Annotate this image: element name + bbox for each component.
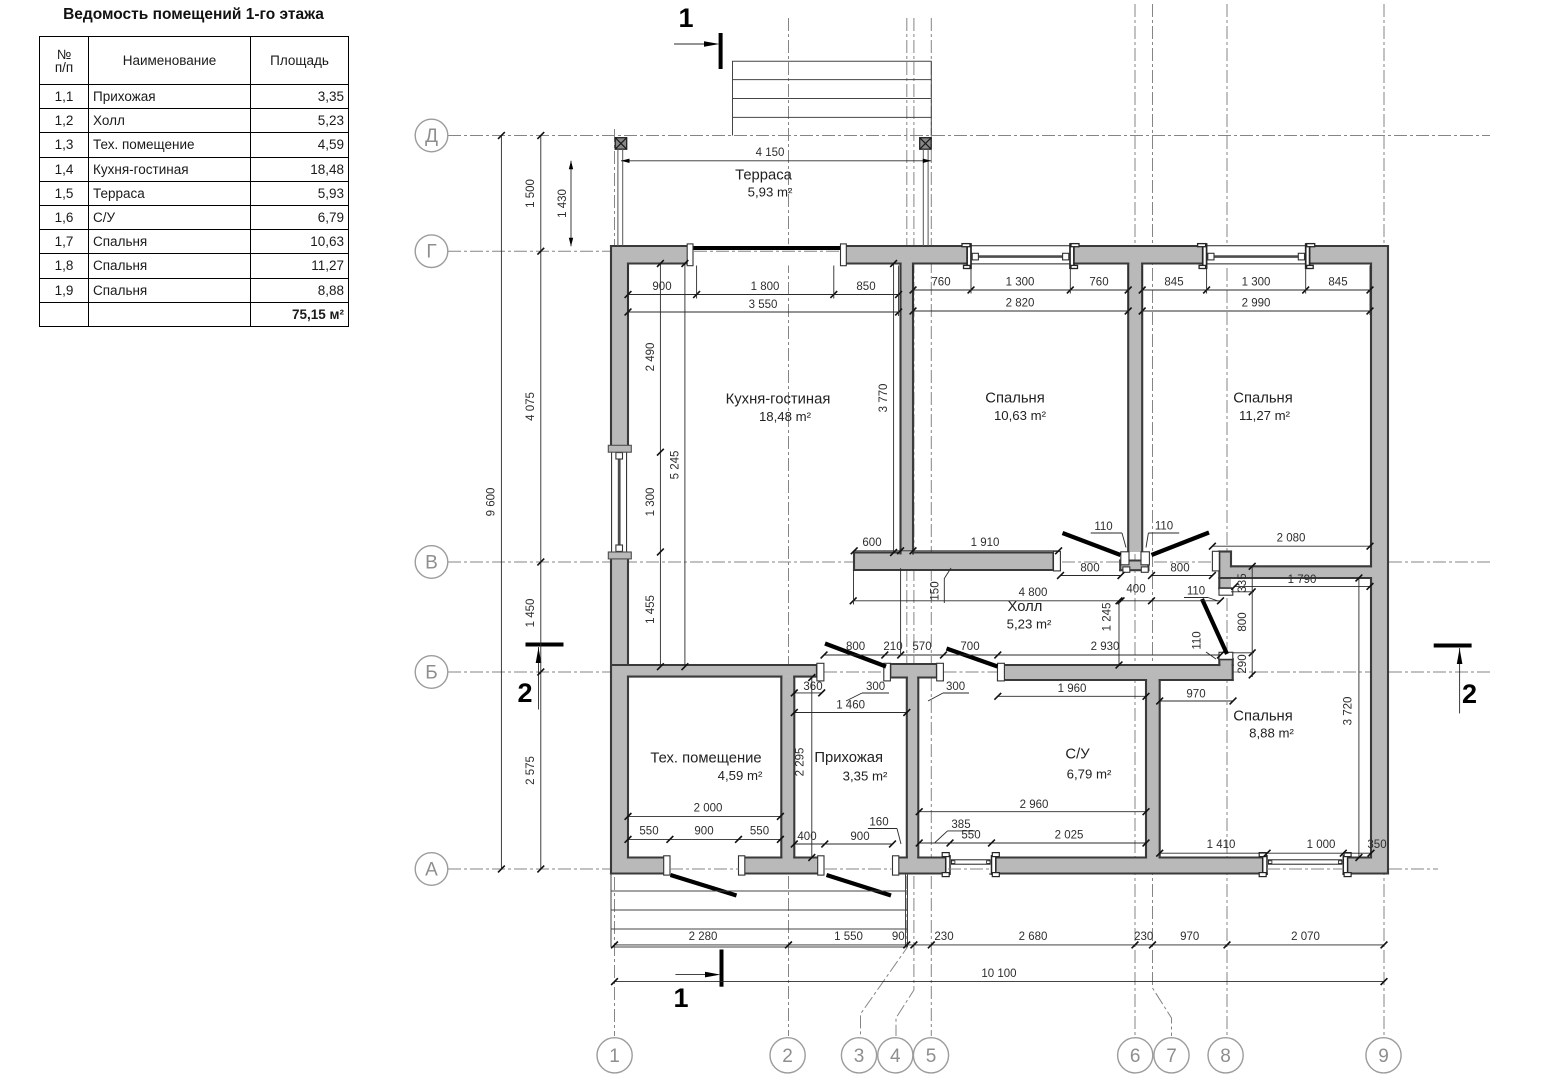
svg-text:1 450: 1 450 [525, 599, 537, 628]
svg-text:Д: Д [425, 126, 438, 147]
svg-text:1 410: 1 410 [1207, 839, 1236, 851]
svg-text:1 300: 1 300 [1006, 277, 1035, 289]
svg-text:3 720: 3 720 [1343, 697, 1355, 726]
svg-text:10,63 m²: 10,63 m² [994, 408, 1047, 423]
svg-text:2 000: 2 000 [694, 803, 723, 815]
svg-text:1 910: 1 910 [971, 537, 1000, 549]
svg-text:1 300: 1 300 [645, 488, 657, 517]
svg-text:1 430: 1 430 [557, 189, 569, 218]
svg-text:3 550: 3 550 [749, 299, 778, 311]
svg-text:385: 385 [951, 819, 970, 831]
svg-text:400: 400 [1126, 584, 1145, 596]
svg-text:400: 400 [797, 831, 816, 843]
svg-text:4 800: 4 800 [1019, 587, 1048, 599]
svg-text:110: 110 [1155, 521, 1173, 533]
svg-text:5,23 m²: 5,23 m² [1007, 617, 1052, 632]
svg-text:600: 600 [862, 537, 881, 549]
svg-text:А: А [425, 860, 438, 881]
svg-text:Г: Г [426, 242, 436, 263]
svg-text:1 300: 1 300 [1242, 277, 1271, 289]
svg-text:1 800: 1 800 [751, 281, 780, 293]
svg-text:Кухня-гостиная: Кухня-гостиная [726, 392, 831, 408]
svg-text:11,27 m²: 11,27 m² [1239, 408, 1291, 423]
svg-text:1: 1 [673, 983, 688, 1013]
svg-text:550: 550 [639, 826, 658, 838]
svg-text:2 070: 2 070 [1291, 931, 1320, 943]
svg-text:Спальня: Спальня [1233, 391, 1292, 407]
svg-text:2: 2 [1462, 679, 1477, 709]
svg-text:1 455: 1 455 [645, 595, 657, 624]
svg-text:7: 7 [1166, 1046, 1177, 1067]
svg-text:700: 700 [960, 641, 979, 653]
svg-text:10 100: 10 100 [981, 968, 1016, 980]
svg-text:970: 970 [1186, 689, 1205, 701]
svg-text:2 680: 2 680 [1019, 931, 1048, 943]
svg-text:2 990: 2 990 [1242, 298, 1271, 310]
svg-text:800: 800 [846, 641, 865, 653]
svg-text:3 770: 3 770 [878, 384, 890, 413]
svg-text:800: 800 [1237, 612, 1249, 631]
svg-text:4,59 m²: 4,59 m² [718, 768, 763, 783]
svg-text:2 025: 2 025 [1055, 830, 1084, 842]
svg-text:360: 360 [803, 681, 822, 693]
svg-text:2 930: 2 930 [1091, 641, 1120, 653]
svg-text:550: 550 [750, 826, 769, 838]
svg-text:210: 210 [883, 641, 902, 653]
svg-text:1 500: 1 500 [525, 179, 537, 208]
svg-text:5,93 m²: 5,93 m² [748, 185, 793, 200]
svg-text:1: 1 [678, 3, 693, 33]
svg-text:850: 850 [856, 281, 875, 293]
svg-text:800: 800 [1080, 563, 1099, 575]
svg-text:570: 570 [912, 641, 931, 653]
svg-text:2: 2 [782, 1046, 793, 1067]
svg-text:9: 9 [1378, 1046, 1389, 1067]
svg-text:160: 160 [869, 817, 888, 829]
svg-text:1 245: 1 245 [1102, 603, 1114, 632]
svg-text:300: 300 [866, 681, 885, 693]
svg-text:4 150: 4 150 [756, 147, 785, 159]
svg-text:4 075: 4 075 [525, 392, 537, 421]
svg-text:8: 8 [1220, 1046, 1231, 1067]
svg-text:1 790: 1 790 [1288, 574, 1317, 586]
svg-text:760: 760 [1089, 277, 1108, 289]
svg-text:150: 150 [930, 581, 942, 600]
svg-text:1 960: 1 960 [1058, 683, 1087, 695]
svg-text:5 245: 5 245 [669, 451, 681, 480]
svg-text:90: 90 [892, 931, 905, 943]
svg-text:550: 550 [961, 830, 980, 842]
svg-text:4: 4 [890, 1046, 901, 1067]
svg-text:1 550: 1 550 [834, 931, 863, 943]
svg-text:В: В [425, 553, 438, 574]
svg-text:Холл: Холл [1008, 599, 1043, 615]
svg-text:350: 350 [1367, 839, 1386, 851]
svg-text:2 080: 2 080 [1277, 533, 1306, 545]
svg-text:2 820: 2 820 [1006, 298, 1035, 310]
svg-text:230: 230 [1134, 931, 1153, 943]
svg-text:8,88 m²: 8,88 m² [1249, 726, 1294, 741]
svg-text:С/У: С/У [1065, 747, 1090, 763]
svg-text:290: 290 [1237, 654, 1249, 673]
svg-text:1: 1 [609, 1046, 620, 1067]
svg-text:845: 845 [1328, 277, 1347, 289]
svg-text:800: 800 [1170, 563, 1189, 575]
svg-text:2 490: 2 490 [645, 343, 657, 372]
svg-text:6,79 m²: 6,79 m² [1067, 767, 1112, 782]
svg-text:3: 3 [854, 1046, 865, 1067]
svg-text:760: 760 [931, 277, 950, 289]
svg-text:6: 6 [1130, 1046, 1141, 1067]
svg-text:Спальня: Спальня [985, 391, 1044, 407]
svg-text:2 280: 2 280 [689, 931, 718, 943]
svg-text:845: 845 [1164, 277, 1183, 289]
svg-text:110: 110 [1187, 586, 1205, 598]
svg-text:110: 110 [1192, 631, 1204, 649]
svg-text:Терраса: Терраса [735, 168, 793, 184]
svg-text:1 000: 1 000 [1307, 839, 1336, 851]
svg-text:18,48 m²: 18,48 m² [759, 409, 812, 424]
svg-text:9 600: 9 600 [486, 488, 498, 517]
svg-text:2: 2 [517, 678, 532, 708]
svg-text:335: 335 [1237, 573, 1249, 592]
svg-text:Спальня: Спальня [1233, 709, 1292, 725]
svg-text:2 295: 2 295 [795, 748, 807, 777]
svg-text:2 960: 2 960 [1020, 799, 1049, 811]
svg-text:Б: Б [425, 663, 437, 684]
svg-text:1 460: 1 460 [836, 700, 865, 712]
svg-text:3,35 m²: 3,35 m² [843, 769, 888, 784]
svg-text:900: 900 [850, 831, 869, 843]
svg-text:110: 110 [1094, 521, 1112, 533]
svg-text:900: 900 [652, 281, 671, 293]
svg-text:5: 5 [926, 1046, 937, 1067]
svg-text:Тех. помещение: Тех. помещение [650, 751, 761, 767]
svg-text:230: 230 [934, 931, 953, 943]
svg-text:300: 300 [946, 681, 965, 693]
svg-text:900: 900 [694, 826, 713, 838]
svg-text:Прихожая: Прихожая [814, 750, 883, 766]
svg-text:2 575: 2 575 [525, 756, 537, 785]
svg-text:970: 970 [1180, 931, 1199, 943]
